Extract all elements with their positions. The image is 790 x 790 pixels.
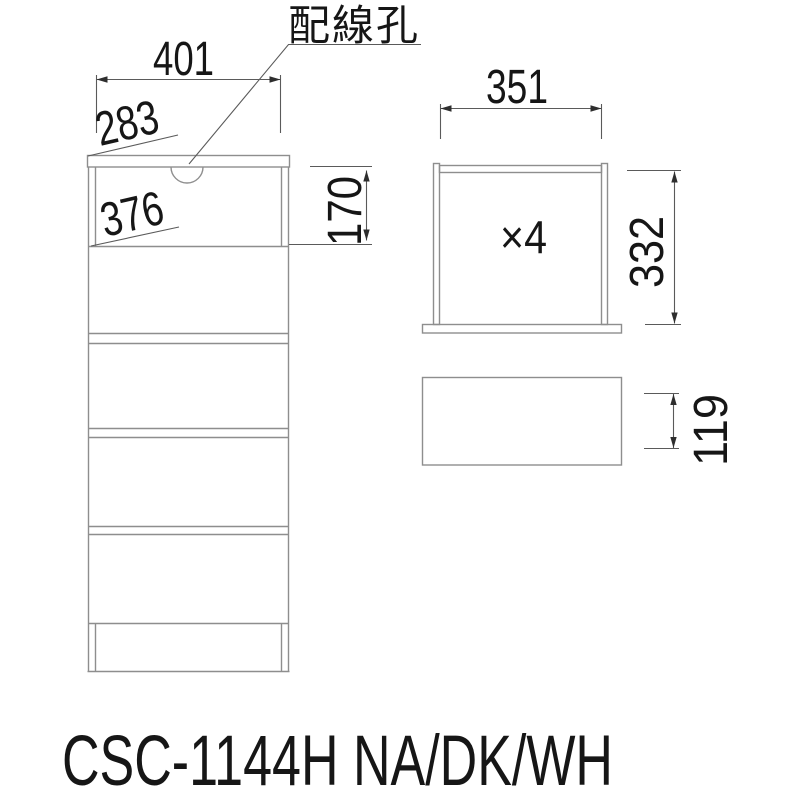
wiring-hole-notch bbox=[171, 167, 203, 183]
model-number-label: CSC-1144H NA/DK/WH bbox=[62, 722, 613, 790]
frame-top-rail bbox=[440, 166, 602, 173]
dim-label-332: 332 bbox=[621, 216, 674, 288]
drawer-front-panel bbox=[423, 378, 622, 466]
dim-label-170: 170 bbox=[319, 176, 372, 246]
drawer-front-outline bbox=[423, 378, 622, 466]
top-board bbox=[88, 156, 290, 168]
dim-label-351: 351 bbox=[486, 61, 548, 114]
dim-label-119: 119 bbox=[685, 394, 738, 466]
dim-label-376: 376 bbox=[96, 182, 169, 248]
frame-left-post bbox=[434, 164, 440, 325]
quantity-label: ×4 bbox=[500, 211, 547, 263]
frame-base-plate bbox=[423, 325, 622, 334]
furniture-dimension-diagram: 配線孔 401 283 376 170 351 ×4 332 119 CSC-1… bbox=[0, 0, 790, 790]
wiring-hole-label: 配線孔 bbox=[288, 2, 420, 49]
dim-label-401: 401 bbox=[153, 33, 214, 86]
frame-right-post bbox=[602, 164, 608, 325]
wiring-hole-leader bbox=[189, 45, 421, 165]
technical-drawing-page: 配線孔 401 283 376 170 351 ×4 332 119 CSC-1… bbox=[0, 0, 790, 790]
dim-label-283: 283 bbox=[91, 91, 164, 157]
